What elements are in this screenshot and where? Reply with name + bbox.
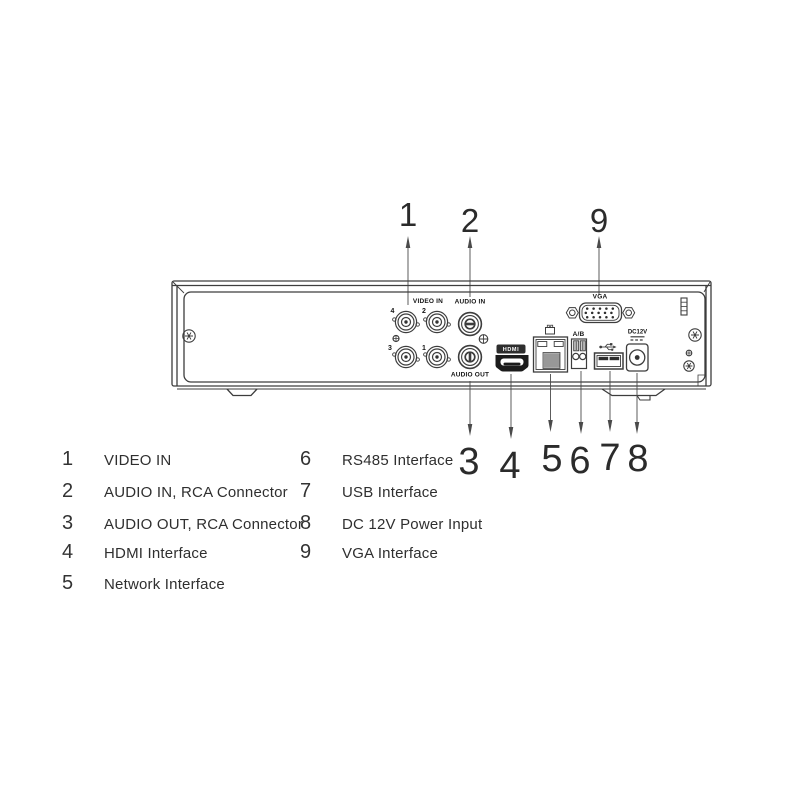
legend-num: 8 — [300, 513, 342, 533]
rs485-terminal: A/B — [572, 331, 587, 369]
bnc-connector — [424, 311, 451, 332]
audio-out-label: AUDIO OUT — [451, 372, 489, 379]
legend-label: USB Interface — [342, 484, 438, 502]
bnc-number: 4 — [391, 308, 395, 315]
legend-label: HDMI Interface — [104, 545, 208, 563]
rca-audio-in — [459, 313, 482, 336]
callout-7: 7 — [599, 437, 620, 479]
callout-9: 9 — [590, 202, 608, 239]
callout-arrows-top — [406, 236, 602, 305]
legend-label: RS485 Interface — [342, 452, 453, 470]
ground-screw-icon — [686, 350, 692, 356]
dc12v-label: DC12V — [628, 330, 647, 336]
legend-label: DC 12V Power Input — [342, 516, 482, 534]
dc-power-jack: DC12V — [627, 330, 649, 372]
vga-hex-nut — [623, 308, 635, 318]
legend-label: AUDIO IN, RCA Connector — [104, 484, 288, 502]
legend-label: AUDIO OUT, RCA Connector — [104, 516, 303, 534]
screw-icon — [689, 329, 701, 341]
bnc-number: 1 — [422, 345, 426, 352]
legend-item-vga: 9 VGA Interface — [300, 542, 438, 563]
screw-icon — [684, 361, 694, 371]
bnc-connector — [424, 346, 451, 367]
legend-num: 1 — [62, 449, 104, 469]
legend-label: Network Interface — [104, 576, 225, 594]
vga-connector: VGA — [566, 294, 634, 323]
legend-item-usb: 7 USB Interface — [300, 481, 438, 502]
callout-arrows-bottom — [468, 371, 640, 439]
callout-numbers-top: 1 2 9 — [399, 196, 608, 239]
callout-numbers-bottom: 3 4 5 6 7 8 — [458, 437, 648, 487]
callout-8: 8 — [627, 438, 648, 480]
callout-1: 1 — [399, 196, 417, 233]
callout-4: 4 — [499, 445, 520, 487]
callout-6: 6 — [569, 440, 590, 482]
ethernet-icon — [546, 325, 555, 334]
rs485-label: A/B — [573, 331, 585, 338]
screw-icon — [393, 336, 399, 342]
callout-2: 2 — [461, 202, 479, 239]
audio-section: AUDIO IN AUDIO OUT — [451, 299, 489, 379]
legend-item-power: 8 DC 12V Power Input — [300, 513, 482, 534]
rear-panel-diagram: 1 2 9 — [0, 0, 800, 800]
legend-num: 7 — [300, 481, 342, 501]
legend-num: 5 — [62, 573, 104, 593]
legend-num: 9 — [300, 542, 342, 562]
bnc-number: 3 — [388, 345, 392, 352]
audio-in-label: AUDIO IN — [455, 299, 486, 306]
video-in-section: VIDEO IN 4 2 3 1 — [388, 298, 450, 368]
rear-panel-diagram-page: 1 2 9 — [0, 0, 800, 800]
legend-item-audio-in: 2 AUDIO IN, RCA Connector — [62, 481, 288, 502]
vga-label: VGA — [593, 294, 608, 301]
rca-audio-out — [459, 346, 482, 369]
usb-icon — [599, 343, 616, 351]
vga-pins — [585, 307, 615, 318]
usb-port — [595, 343, 624, 369]
legend-num: 3 — [62, 513, 104, 533]
network-port — [534, 325, 568, 372]
hdmi-port: HDMI — [496, 345, 528, 371]
video-in-label: VIDEO IN — [413, 298, 443, 305]
callout-3: 3 — [458, 441, 479, 483]
hdmi-badge-label: HDMI — [503, 347, 519, 353]
legend-item-network: 5 Network Interface — [62, 573, 225, 594]
vent-grill — [681, 298, 687, 315]
right-foot — [602, 389, 665, 396]
legend-item-audio-out: 3 AUDIO OUT, RCA Connector — [62, 513, 303, 534]
vga-hex-nut — [566, 308, 578, 318]
legend-item-video-in: 1 VIDEO IN — [62, 449, 171, 470]
bnc-number: 2 — [422, 308, 426, 315]
legend-label: VIDEO IN — [104, 452, 171, 470]
callout-5: 5 — [541, 438, 562, 480]
legend-item-rs485: 6 RS485 Interface — [300, 449, 453, 470]
screw-icon — [183, 330, 195, 342]
legend-num: 2 — [62, 481, 104, 501]
bnc-connector — [393, 311, 420, 332]
bnc-connector — [393, 346, 420, 367]
legend-num: 4 — [62, 542, 104, 562]
legend-item-hdmi: 4 HDMI Interface — [62, 542, 208, 563]
left-foot — [227, 389, 257, 396]
legend-label: VGA Interface — [342, 545, 438, 563]
legend-num: 6 — [300, 449, 342, 469]
screw-icon — [479, 335, 488, 344]
